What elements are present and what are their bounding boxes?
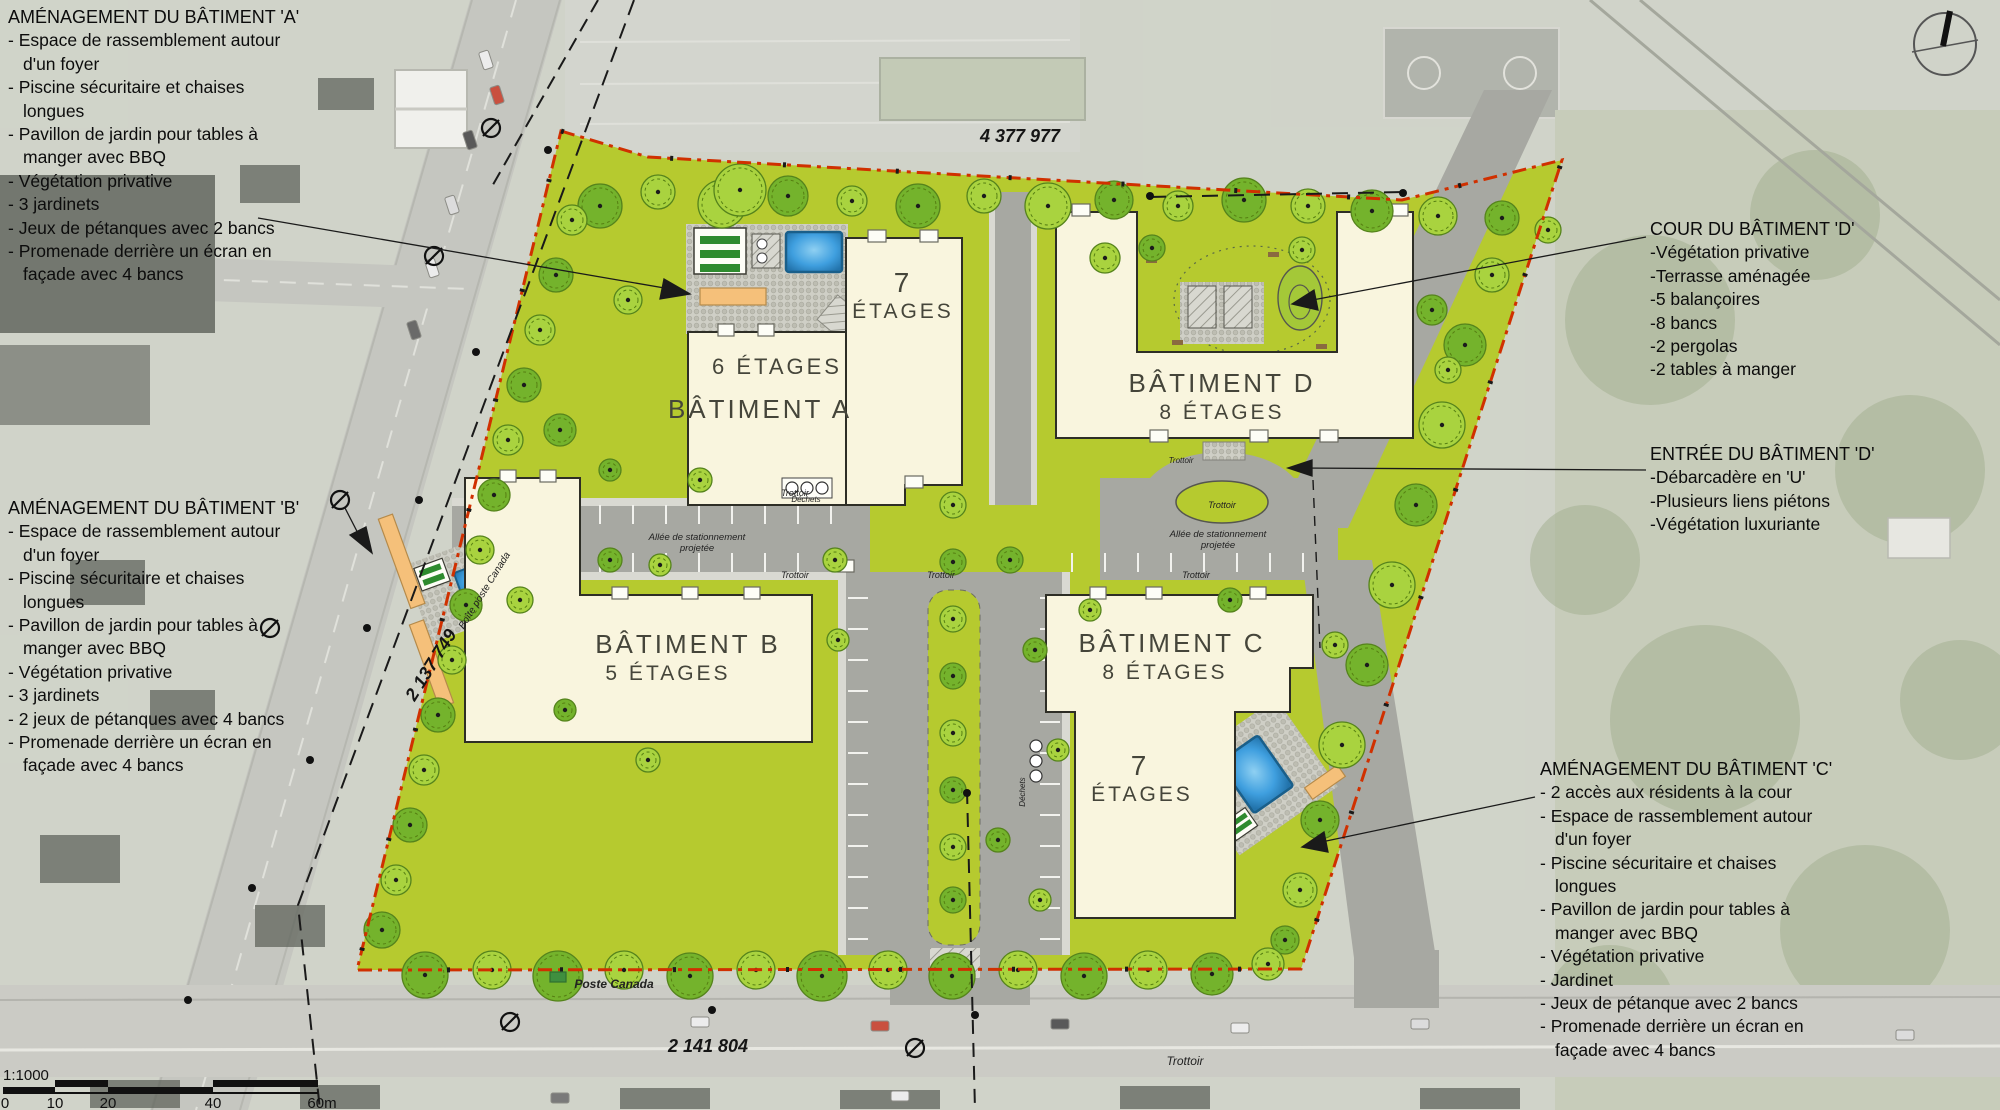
tree-icon <box>393 808 427 842</box>
annotation-item: - 2 jeux de pétanques avec 4 bancs <box>8 708 288 731</box>
building-b-floors: 5 ÉTAGES <box>605 662 730 685</box>
tree-icon <box>1346 644 1388 686</box>
sidewalk-label-6: Trottoir <box>1169 456 1194 465</box>
tree-icon <box>667 953 713 999</box>
tree-icon <box>598 548 622 572</box>
annotation-cour-d: COUR DU BÂTIMENT 'D' -Végétation privati… <box>1650 218 1980 382</box>
building-d-floors: 8 ÉTAGES <box>1159 401 1284 424</box>
building-d-name: BÂTIMENT D <box>1129 368 1316 398</box>
tree-icon <box>797 951 847 1001</box>
site-plan-drawing: 7 ÉTAGES 6 ÉTAGES BÂTIMENT A BÂTIMENT D … <box>0 0 2000 1110</box>
tree-icon <box>381 865 411 895</box>
tree-icon <box>940 777 966 803</box>
tree-icon <box>554 699 576 721</box>
tree-icon <box>557 205 587 235</box>
tree-icon <box>1191 953 1233 995</box>
tree-icon <box>1289 237 1315 263</box>
annotation-item: - Piscine sécuritaire et chaises longues <box>8 76 288 123</box>
scale-tick-4: 60m <box>307 1095 336 1110</box>
tree-icon <box>997 547 1023 573</box>
car <box>1231 1023 1249 1033</box>
alley-label-2-line2: projetée <box>1200 540 1235 551</box>
annotation-item: -8 bancs <box>1650 312 1980 335</box>
tree-icon <box>1139 235 1165 261</box>
field-trees <box>1530 505 1640 615</box>
annotation-item: - Promenade derrière un écran en façade … <box>1540 1015 1830 1062</box>
house-roof <box>40 835 120 883</box>
building-c-wing-floors-word: ÉTAGES <box>1091 783 1193 806</box>
tree-icon <box>1061 953 1107 999</box>
annotation-item: - Pavillon de jardin pour tables à mange… <box>8 123 288 170</box>
annotation-batiment-b: AMÉNAGEMENT DU BÂTIMENT 'B' - Espace de … <box>8 497 288 778</box>
building-c-name: BÂTIMENT C <box>1079 628 1266 658</box>
tree-icon <box>1485 201 1519 235</box>
annotation-entree-d: ENTRÉE DU BÂTIMENT 'D' -Débarcadère en '… <box>1650 443 1980 537</box>
tree-icon <box>1023 638 1047 662</box>
tree-icon <box>1222 178 1266 222</box>
scale-ratio: 1:1000 <box>3 1067 49 1084</box>
annotation-item: - Végétation privative <box>8 170 288 193</box>
tree-icon <box>1369 562 1415 608</box>
sidewalk-label-5: Trottoir <box>1208 500 1237 510</box>
tree-icon <box>940 606 966 632</box>
annotation-item: -5 balançoires <box>1650 288 1980 311</box>
tree-icon <box>1095 181 1133 219</box>
annotation-title: AMÉNAGEMENT DU BÂTIMENT 'A' <box>8 6 288 29</box>
scale-tick-1: 10 <box>47 1095 64 1110</box>
tree-icon <box>940 663 966 689</box>
tree-icon <box>823 548 847 572</box>
tree-icon <box>402 952 448 998</box>
annotation-batiment-a: AMÉNAGEMENT DU BÂTIMENT 'A' - Espace de … <box>8 6 288 287</box>
annotation-item: -Débarcadère en 'U' <box>1650 466 1980 489</box>
tree-icon <box>466 536 494 564</box>
lot-number-top: 4 377 977 <box>979 126 1061 146</box>
sidewalk-label-4: Trottoir <box>1182 570 1211 580</box>
tree-icon <box>1435 357 1461 383</box>
building-a-floors: 6 ÉTAGES <box>712 354 842 379</box>
annotation-item: -2 pergolas <box>1650 335 1980 358</box>
annotation-item: - Espace de rassemblement autour d'un fo… <box>8 29 288 76</box>
annotation-item: -Plusieurs liens piétons <box>1650 490 1980 513</box>
annotation-item: -2 tables à manger <box>1650 358 1980 381</box>
tree-icon <box>1419 197 1457 235</box>
tree-icon <box>636 748 660 772</box>
tree-icon <box>940 887 966 913</box>
building-a-wing-floors-num: 7 <box>894 267 913 298</box>
tree-icon <box>1419 402 1465 448</box>
tree-icon <box>507 587 533 613</box>
sidewalk-label-1: Trottoir <box>781 488 810 498</box>
tree-icon <box>714 164 766 216</box>
scale-tick-0: 0 <box>1 1095 9 1110</box>
annotation-title: COUR DU BÂTIMENT 'D' <box>1650 218 1980 241</box>
tree-icon <box>599 459 621 481</box>
waste-label-2: Déchets <box>1018 777 1027 806</box>
building-c-wing-floors-num: 7 <box>1131 750 1150 781</box>
tree-icon <box>1301 801 1339 839</box>
house-roof <box>840 1090 940 1109</box>
scale-tick-3: 40 <box>205 1095 222 1110</box>
annotation-item: - Jeux de pétanque avec 2 bancs <box>1540 992 1830 1015</box>
tree-icon <box>507 368 541 402</box>
annotation-item: - Espace de rassemblement autour d'un fo… <box>8 520 288 567</box>
tree-icon <box>1417 295 1447 325</box>
tree-icon <box>1319 722 1365 768</box>
building-c-floors: 8 ÉTAGES <box>1102 661 1227 684</box>
tree-icon <box>649 554 671 576</box>
annotation-batiment-c: AMÉNAGEMENT DU BÂTIMENT 'C' - 2 accès au… <box>1540 758 1830 1062</box>
annotation-item: -Terrasse aménagée <box>1650 265 1980 288</box>
house-roof <box>1120 1086 1210 1109</box>
lot-number-bottom: 2 141 804 <box>667 1036 748 1056</box>
annotation-title: AMÉNAGEMENT DU BÂTIMENT 'B' <box>8 497 288 520</box>
tree-icon <box>1029 889 1051 911</box>
tree-icon <box>940 720 966 746</box>
car <box>891 1091 909 1101</box>
post-office-label: Poste Canada <box>574 977 654 991</box>
scale-tick-2: 20 <box>100 1095 117 1110</box>
tree-icon <box>544 414 576 446</box>
tree-icon <box>1079 599 1101 621</box>
tree-icon <box>478 479 510 511</box>
annotation-item: - Pavillon de jardin pour tables à mange… <box>8 614 288 661</box>
house-roof <box>255 905 325 947</box>
annotation-item: - Promenade derrière un écran en façade … <box>8 240 288 287</box>
post-box-icon <box>550 972 566 982</box>
annotation-title: AMÉNAGEMENT DU BÂTIMENT 'C' <box>1540 758 1830 781</box>
annotation-item: - 2 accès aux résidents à la cour <box>1540 781 1830 804</box>
tree-icon <box>539 258 573 292</box>
annotation-title: ENTRÉE DU BÂTIMENT 'D' <box>1650 443 1980 466</box>
tree-icon <box>1322 632 1348 658</box>
alley-label-1-line2: projetée <box>679 543 714 554</box>
annotation-item: - 3 jardinets <box>8 684 288 707</box>
tree-icon <box>409 755 439 785</box>
annotation-item: - Espace de rassemblement autour d'un fo… <box>1540 805 1830 852</box>
tree-icon <box>1395 484 1437 526</box>
tree-icon <box>986 828 1010 852</box>
tree-icon <box>837 186 867 216</box>
building-a-wing-floors-word: ÉTAGES <box>852 300 954 323</box>
car <box>1896 1030 1914 1040</box>
car <box>871 1021 889 1031</box>
tree-icon <box>827 629 849 651</box>
tree-icon <box>967 179 1001 213</box>
annotation-item: - Jeux de pétanques avec 2 bancs <box>8 217 288 240</box>
tree-icon <box>929 953 975 999</box>
tree-icon <box>1047 739 1069 761</box>
car <box>1411 1019 1429 1029</box>
house-roof <box>1420 1088 1520 1109</box>
annotation-item: -Végétation luxuriante <box>1650 513 1980 536</box>
annotation-item: - Jardinet <box>1540 969 1830 992</box>
tree-icon <box>768 176 808 216</box>
tree-icon <box>614 286 642 314</box>
house-roof <box>318 78 374 110</box>
tree-icon <box>688 468 712 492</box>
sidewalk-label-2: Trottoir <box>781 570 810 580</box>
tree-icon <box>1475 258 1509 292</box>
tree-icon <box>641 175 675 209</box>
annotation-item: -Végétation privative <box>1650 241 1980 264</box>
annotation-item: - Piscine sécuritaire et chaises longues <box>8 567 288 614</box>
tree-icon <box>493 425 523 455</box>
tree-icon <box>940 834 966 860</box>
alley-label-2-line1: Allée de stationnement <box>1169 529 1267 540</box>
tree-icon <box>1090 243 1120 273</box>
car <box>551 1093 569 1103</box>
tree-icon <box>1283 873 1317 907</box>
tree-icon <box>421 698 455 732</box>
tree-icon <box>1252 948 1284 980</box>
sidewalk-label-3: Trottoir <box>927 570 956 580</box>
alley-label-1-line1: Allée de stationnement <box>648 532 746 543</box>
tree-icon <box>525 315 555 345</box>
annotation-item: - 3 jardinets <box>8 193 288 216</box>
annotation-item: - Pavillon de jardin pour tables à mange… <box>1540 898 1830 945</box>
annotation-item: - Piscine sécuritaire et chaises longues <box>1540 852 1830 899</box>
house-roof <box>620 1088 710 1109</box>
tree-icon <box>1218 588 1242 612</box>
car <box>691 1017 709 1027</box>
building-a-name: BÂTIMENT A <box>668 394 852 424</box>
annotation-item: - Végétation privative <box>8 661 288 684</box>
annotation-item: - Végétation privative <box>1540 945 1830 968</box>
building-b-name: BÂTIMENT B <box>595 629 781 659</box>
tree-icon <box>940 492 966 518</box>
annotation-item: - Promenade derrière un écran en façade … <box>8 731 288 778</box>
tree-icon <box>896 184 940 228</box>
tree-icon <box>1025 183 1071 229</box>
sidewalk-label-7: Trottoir <box>1166 1054 1204 1068</box>
car <box>1051 1019 1069 1029</box>
